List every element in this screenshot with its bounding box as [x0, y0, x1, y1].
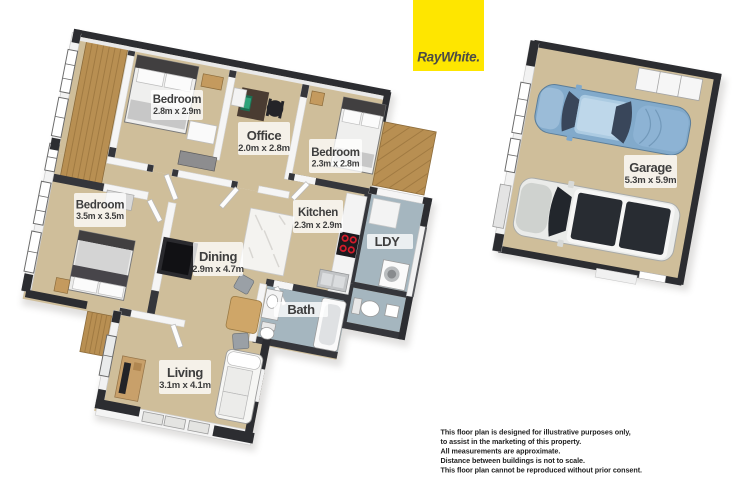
svg-text:Office: Office	[247, 128, 282, 143]
svg-text:2.0m x 2.8m: 2.0m x 2.8m	[238, 143, 290, 154]
svg-text:Bedroom: Bedroom	[76, 200, 124, 212]
svg-text:Distance between buildings is: Distance between buildings is not to sca…	[441, 456, 585, 465]
svg-text:RayWhite.: RayWhite.	[417, 50, 480, 65]
svg-text:Living: Living	[167, 365, 203, 380]
svg-text:Bedroom: Bedroom	[153, 94, 201, 106]
svg-text:Bath: Bath	[287, 302, 315, 317]
svg-text:This floor plan is designed fo: This floor plan is designed for illustra…	[441, 428, 631, 437]
svg-text:3.1m x 4.1m: 3.1m x 4.1m	[159, 380, 211, 391]
svg-text:3.5m x 3.5m: 3.5m x 3.5m	[76, 211, 124, 221]
svg-text:This floor plan cannot be repr: This floor plan cannot be reproduced wit…	[441, 466, 643, 475]
svg-text:2.9m x 4.7m: 2.9m x 4.7m	[192, 264, 244, 275]
svg-text:5.3m x 5.9m: 5.3m x 5.9m	[625, 175, 677, 186]
svg-text:Kitchen: Kitchen	[298, 207, 338, 219]
svg-text:Garage: Garage	[629, 160, 672, 175]
svg-text:2.3m x 2.8m: 2.3m x 2.8m	[312, 159, 360, 169]
svg-text:LDY: LDY	[375, 234, 401, 249]
svg-text:2.8m x 2.9m: 2.8m x 2.9m	[153, 106, 201, 116]
svg-text:All measurements are approxima: All measurements are approximate.	[441, 447, 561, 456]
svg-text:to assist in the marketing of: to assist in the marketing of this prope…	[441, 437, 582, 446]
svg-text:Bedroom: Bedroom	[311, 147, 359, 159]
svg-text:2.3m x 2.9m: 2.3m x 2.9m	[294, 220, 342, 230]
svg-text:Dining: Dining	[199, 249, 237, 264]
